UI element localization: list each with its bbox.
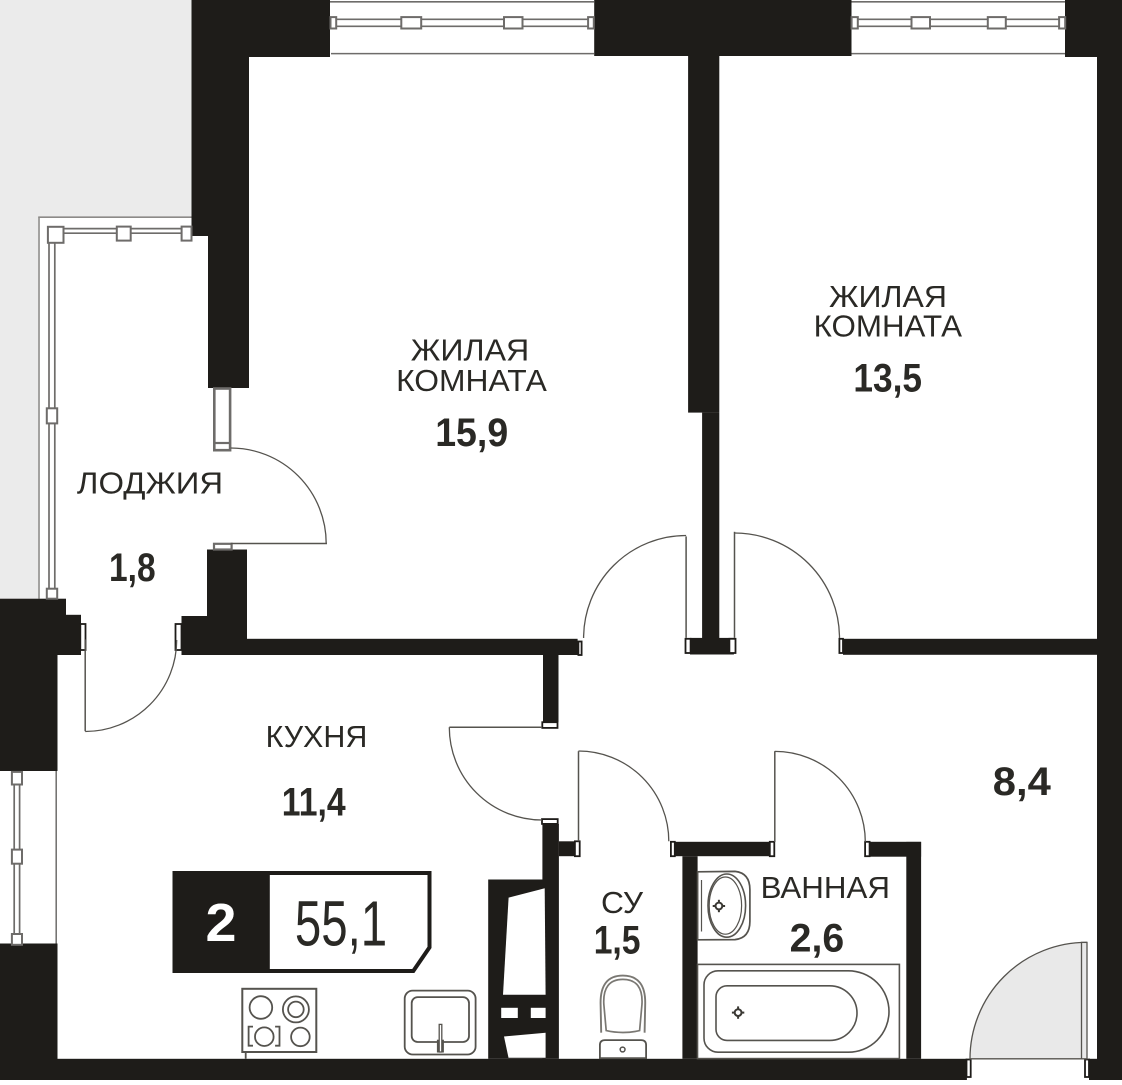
svg-text:2,6: 2,6 <box>790 916 845 960</box>
svg-text:ЛОДЖИЯ: ЛОДЖИЯ <box>77 466 223 501</box>
svg-text:КОМНАТА: КОМНАТА <box>396 363 547 398</box>
svg-text:2: 2 <box>206 893 237 953</box>
svg-text:15,9: 15,9 <box>435 411 508 455</box>
svg-text:11,4: 11,4 <box>282 781 346 825</box>
svg-text:СУ: СУ <box>601 885 643 920</box>
svg-text:ВАННАЯ: ВАННАЯ <box>761 871 890 905</box>
svg-text:1,8: 1,8 <box>109 546 156 590</box>
svg-text:55,1: 55,1 <box>295 888 387 960</box>
svg-text:13,5: 13,5 <box>853 357 922 401</box>
svg-text:КОМНАТА: КОМНАТА <box>814 309 963 344</box>
svg-text:8,4: 8,4 <box>993 760 1052 804</box>
svg-text:КУХНЯ: КУХНЯ <box>266 719 368 754</box>
svg-text:1,5: 1,5 <box>594 919 641 963</box>
